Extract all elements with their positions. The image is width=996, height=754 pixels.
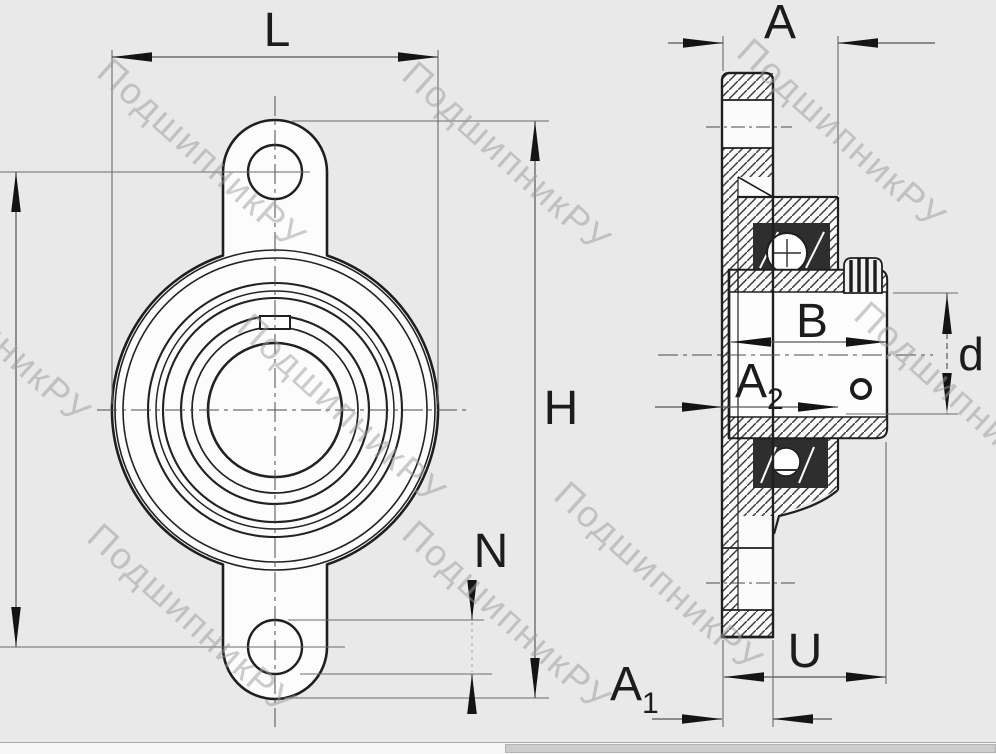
scrollbar-thumb[interactable] — [505, 744, 996, 753]
bearing-unit-drawing: L H N — [0, 0, 996, 754]
dim-label-L: L — [264, 4, 291, 57]
bearing-top — [753, 223, 830, 273]
horizontal-scrollbar[interactable] — [0, 742, 996, 754]
bearing-bottom — [753, 438, 828, 488]
ball-bottom — [772, 448, 800, 476]
watermark-text: ПодшипникРУ — [0, 225, 99, 433]
drawing-canvas: L H N — [0, 0, 996, 754]
front-view — [97, 96, 468, 727]
dim-label-U: U — [788, 625, 823, 678]
watermark-text: ПодшипникРУ — [395, 53, 619, 261]
dim-label-B: B — [796, 295, 828, 348]
dim-label-H: H — [544, 382, 579, 435]
set-screw — [844, 258, 882, 293]
screw-hole — [852, 380, 870, 398]
